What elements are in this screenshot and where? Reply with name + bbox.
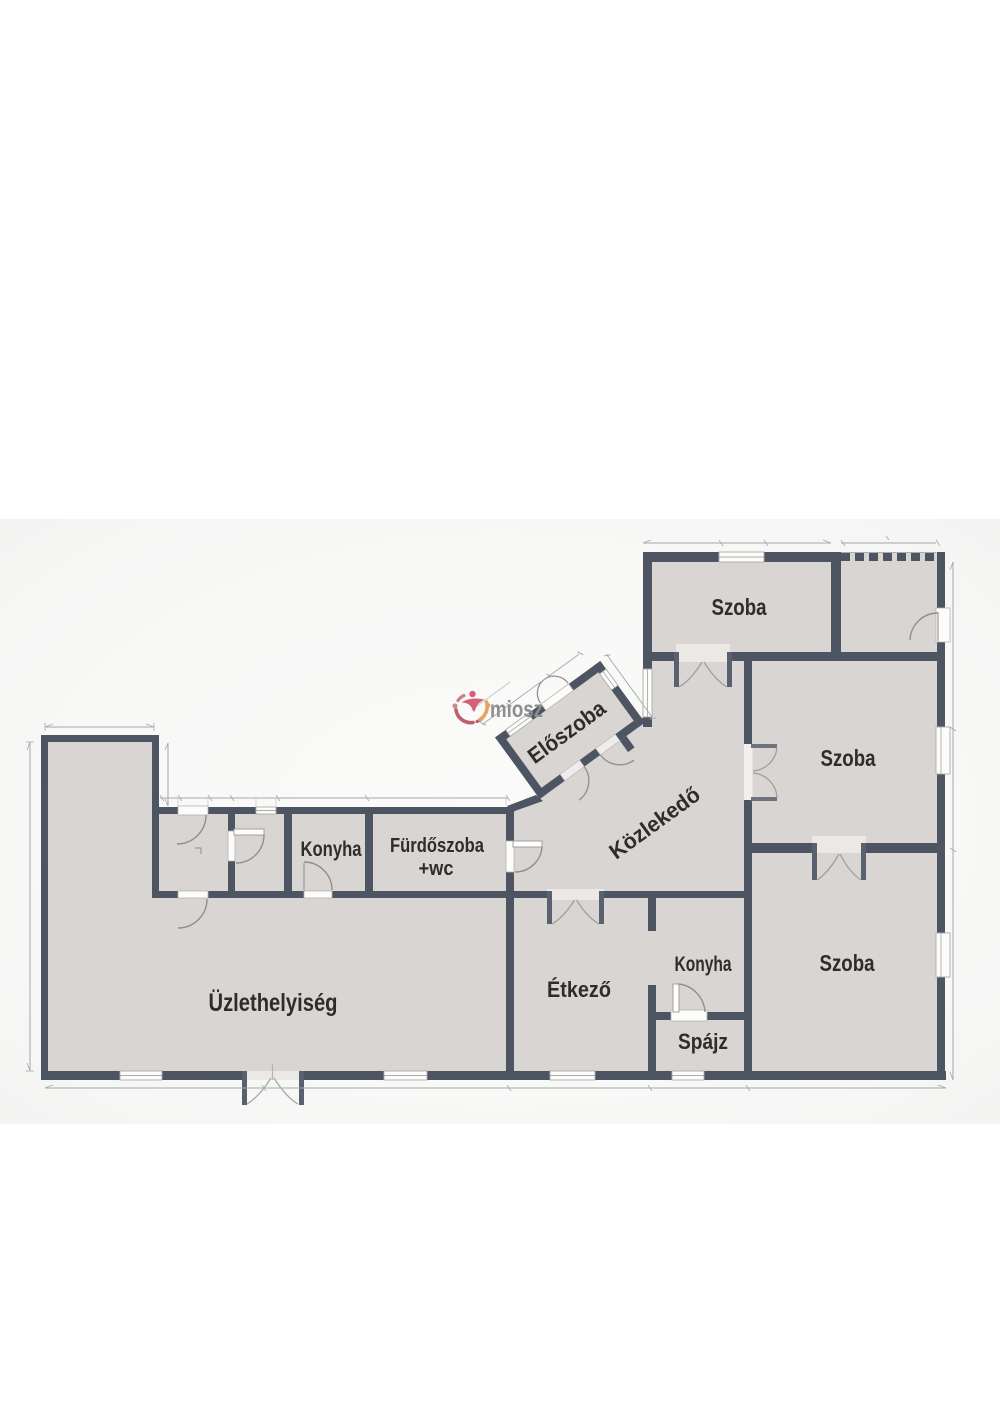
svg-text:Fürdőszoba: Fürdőszoba [390, 835, 485, 857]
svg-text:Üzlethelyiség: Üzlethelyiség [209, 988, 338, 1017]
svg-text:+wc: +wc [419, 858, 454, 880]
svg-text:Szoba: Szoba [820, 950, 875, 976]
svg-text:Étkező: Étkező [547, 977, 611, 1002]
svg-text:miosz: miosz [490, 696, 543, 722]
svg-text:Spájz: Spájz [678, 1029, 728, 1054]
svg-text:Konyha: Konyha [675, 953, 732, 976]
svg-text:Konyha: Konyha [301, 838, 362, 861]
svg-text:Szoba: Szoba [821, 745, 876, 771]
svg-text:Szoba: Szoba [712, 594, 767, 620]
